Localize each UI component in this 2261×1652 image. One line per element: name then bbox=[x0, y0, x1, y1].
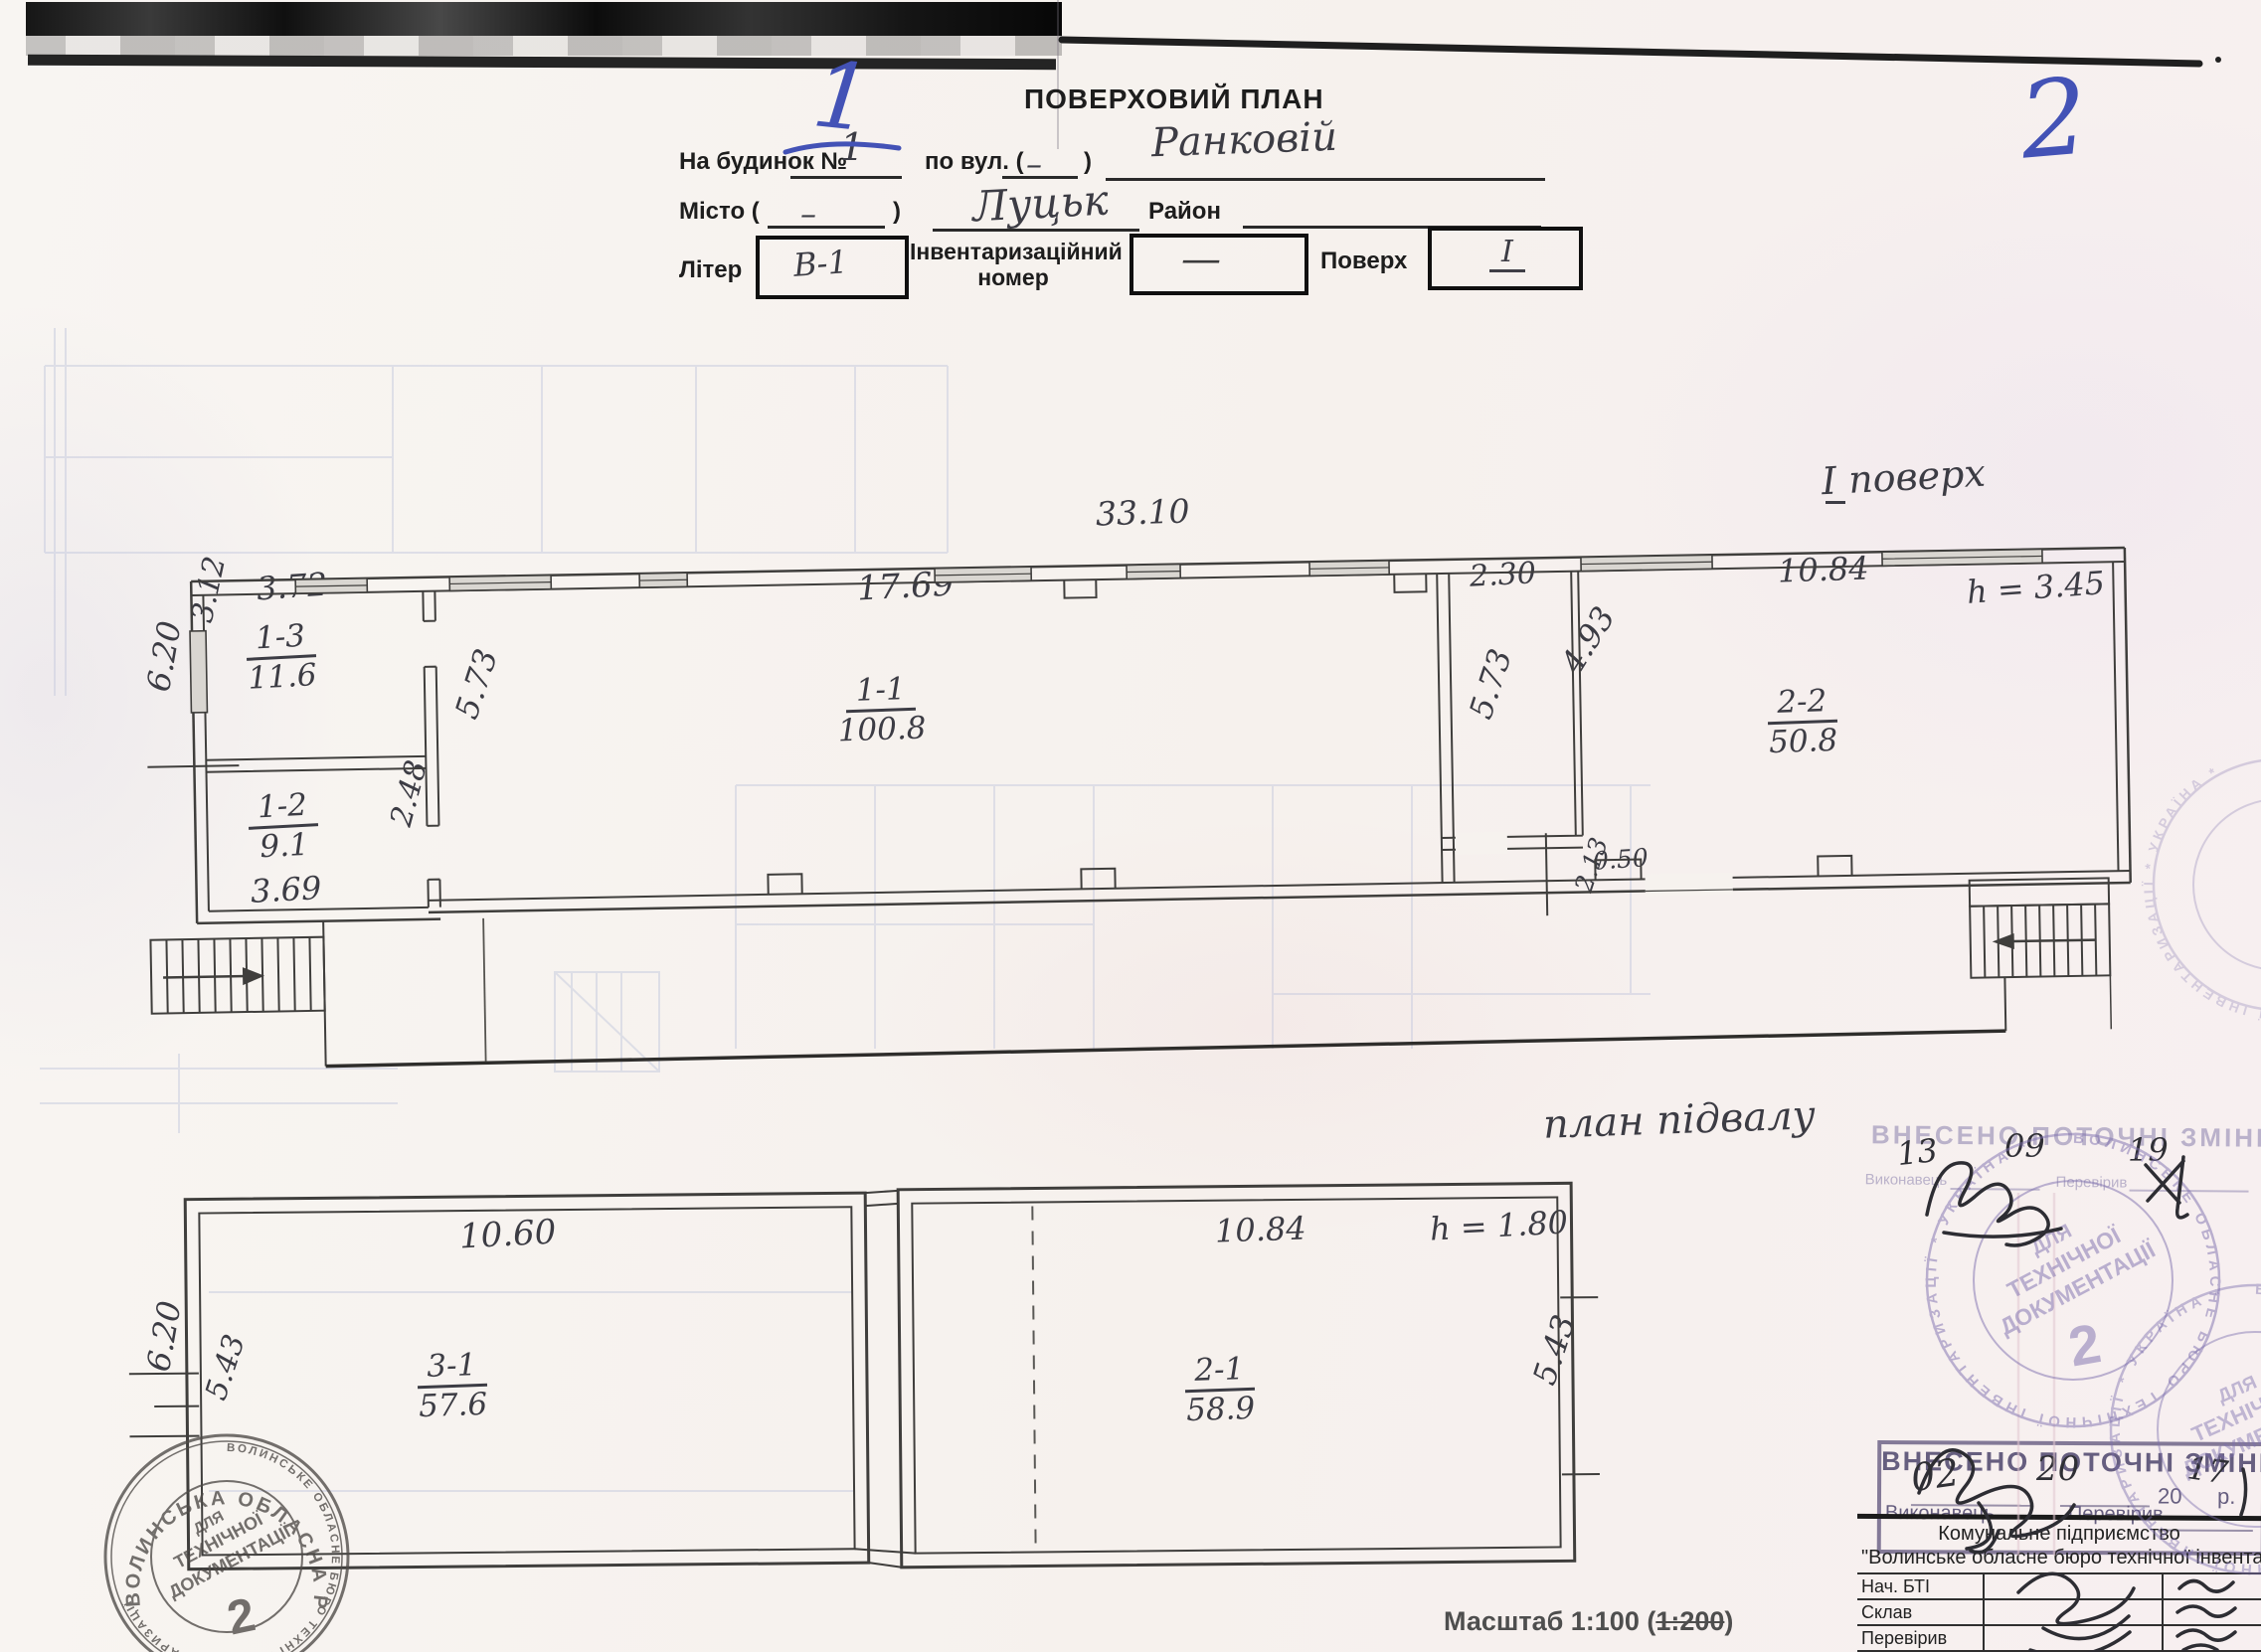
signature-stamp-bottom bbox=[1919, 1450, 2074, 1553]
blue-page-number-underline bbox=[785, 144, 899, 152]
signature-org-table-names bbox=[2177, 1580, 2235, 1650]
handwriting-overlay bbox=[0, 0, 2261, 1652]
signature-org-table bbox=[2018, 1573, 2134, 1652]
scanned-floor-plan-document: ВОЛИНСЬКЕ ОБЛАСНЕ БЮРО ТЕХНІЧНОЇ ІНВЕНТА… bbox=[0, 0, 2261, 1652]
signature-stamp-top-initials bbox=[2146, 1157, 2187, 1218]
signature-stamp-bottom-mark bbox=[2241, 1469, 2246, 1515]
